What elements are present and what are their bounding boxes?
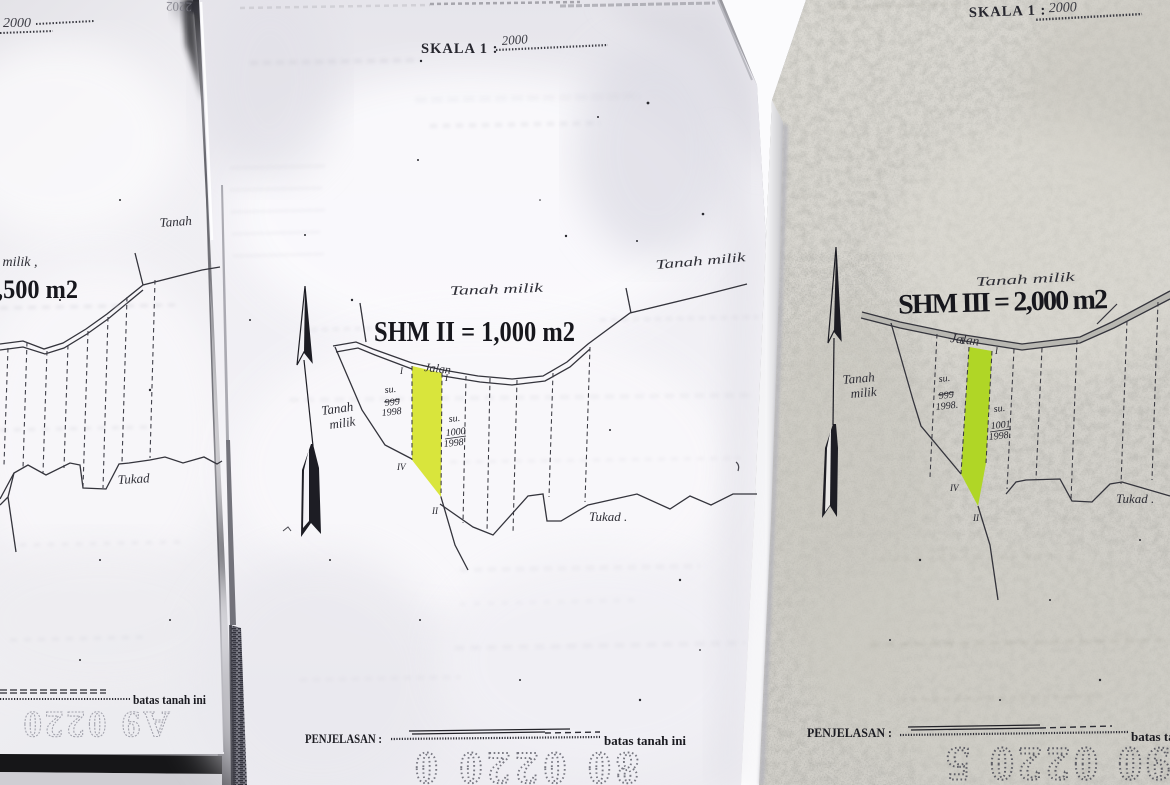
svg-text:SHM III = 2,000 m2: SHM III = 2,000 m2 [898,284,1109,320]
svg-text:su.: su. [993,403,1005,415]
svg-text:milik: milik [850,384,877,401]
svg-text:2202: 2202 [166,0,193,15]
svg-text:Tukad .: Tukad . [589,509,627,524]
svg-text:2000: 2000 [3,16,31,31]
svg-text:2000: 2000 [1049,0,1078,16]
svg-text:Tanah: Tanah [159,213,192,230]
svg-text:SHM II = 1,000 m2: SHM II = 1,000 m2 [374,317,575,348]
svg-text:80 0220 0: 80 0220 0 [410,743,639,785]
svg-text:II: II [431,506,439,516]
svg-text:IV: IV [396,462,407,472]
svg-text:Tukad .: Tukad . [1116,491,1154,506]
svg-text:su.: su. [448,413,460,425]
svg-text:PENJELASAN :: PENJELASAN : [305,731,382,746]
svg-text:SKALA 1 :: SKALA 1 : [969,2,1047,21]
svg-text:A9 0220: A9 0220 [21,703,170,744]
svg-text:II: II [972,513,980,523]
svg-text:1998.: 1998. [935,400,959,413]
svg-text:,500 m2: ,500 m2 [0,275,78,304]
svg-text:Tukad: Tukad [117,470,150,487]
svg-text:su.: su. [384,384,396,396]
svg-text:su.: su. [938,373,950,385]
svg-text:SKALA 1 :: SKALA 1 : [421,41,499,57]
svg-text:90 0220 5: 90 0220 5 [942,737,1170,785]
svg-text:IV: IV [949,483,960,493]
svg-text:PENJELASAN :: PENJELASAN : [807,725,892,740]
svg-text:2000: 2000 [501,31,528,48]
svg-text:ƒ milik ,: ƒ milik , [0,255,38,270]
svg-text:1998: 1998 [381,406,402,419]
